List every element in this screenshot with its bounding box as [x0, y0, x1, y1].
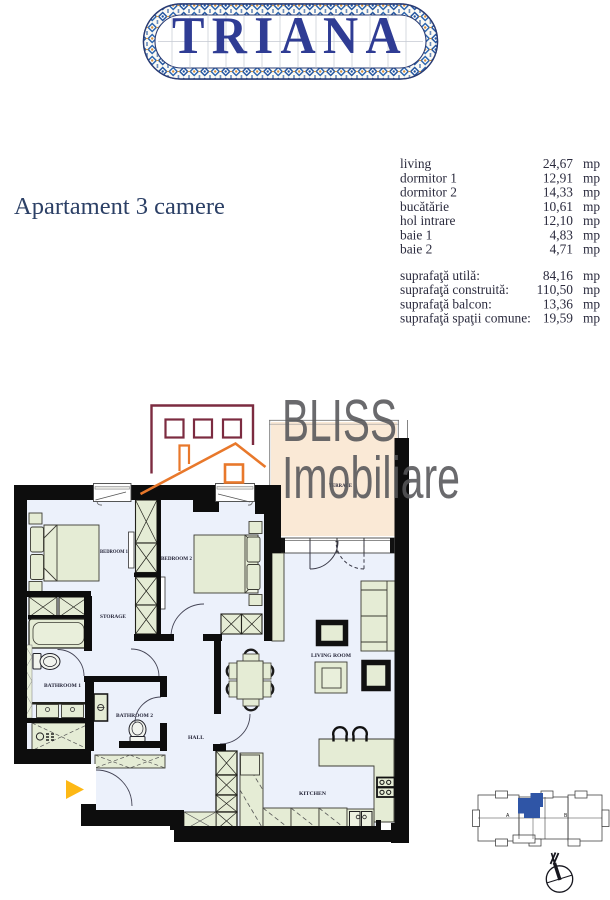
- svg-text:dormitor 2: dormitor 2: [400, 185, 457, 200]
- svg-text:bucătărie: bucătărie: [400, 199, 449, 214]
- svg-text:LIVING ROOM: LIVING ROOM: [311, 653, 351, 659]
- svg-text:12,10: 12,10: [543, 213, 573, 228]
- svg-text:mp: mp: [583, 268, 600, 283]
- svg-text:STORAGE: STORAGE: [100, 614, 127, 620]
- svg-text:mp: mp: [583, 199, 600, 214]
- svg-text:mp: mp: [583, 296, 600, 311]
- svg-text:84,16: 84,16: [543, 268, 573, 283]
- svg-text:suprafaţă balcon:: suprafaţă balcon:: [400, 296, 492, 311]
- svg-text:suprafaţă utilă:: suprafaţă utilă:: [400, 268, 480, 283]
- svg-text:19,59: 19,59: [543, 311, 573, 326]
- svg-text:110,50: 110,50: [537, 282, 574, 297]
- svg-text:mp: mp: [583, 156, 600, 171]
- svg-text:mp: mp: [583, 227, 600, 242]
- svg-text:hol intrare: hol intrare: [400, 213, 455, 228]
- svg-text:baie 1: baie 1: [400, 227, 432, 242]
- svg-text:suprafaţă spaţii comune:: suprafaţă spaţii comune:: [400, 311, 531, 326]
- svg-text:BEDROOM 2: BEDROOM 2: [161, 556, 192, 562]
- svg-text:KITCHEN: KITCHEN: [299, 791, 326, 797]
- svg-text:mp: mp: [583, 170, 600, 185]
- svg-text:suprafaţă construită:: suprafaţă construită:: [400, 282, 509, 297]
- svg-text:Imobiliare: Imobiliare: [282, 445, 460, 511]
- svg-text:24,67: 24,67: [543, 156, 573, 171]
- svg-text:TRIANA: TRIANA: [172, 7, 408, 65]
- svg-text:mp: mp: [583, 213, 600, 228]
- svg-text:BEDROOM 1: BEDROOM 1: [100, 549, 128, 555]
- svg-text:12,91: 12,91: [543, 170, 573, 185]
- svg-text:living: living: [400, 156, 432, 171]
- svg-text:mp: mp: [583, 242, 600, 257]
- svg-text:HALL: HALL: [188, 735, 205, 741]
- svg-text:4,71: 4,71: [550, 242, 573, 257]
- svg-text:dormitor 1: dormitor 1: [400, 170, 457, 185]
- svg-text:mp: mp: [583, 185, 600, 200]
- svg-text:10,61: 10,61: [543, 199, 573, 214]
- svg-text:4,83: 4,83: [550, 227, 574, 242]
- svg-text:baie 2: baie 2: [400, 242, 432, 257]
- svg-text:BATHROOM 2: BATHROOM 2: [116, 713, 153, 719]
- svg-text:Apartament 3 camere: Apartament 3 camere: [14, 193, 225, 220]
- svg-text:mp: mp: [583, 311, 600, 326]
- svg-text:13,36: 13,36: [543, 296, 573, 311]
- svg-text:mp: mp: [583, 282, 600, 297]
- svg-text:14,33: 14,33: [543, 185, 573, 200]
- svg-text:BATHROOM 1: BATHROOM 1: [44, 683, 81, 689]
